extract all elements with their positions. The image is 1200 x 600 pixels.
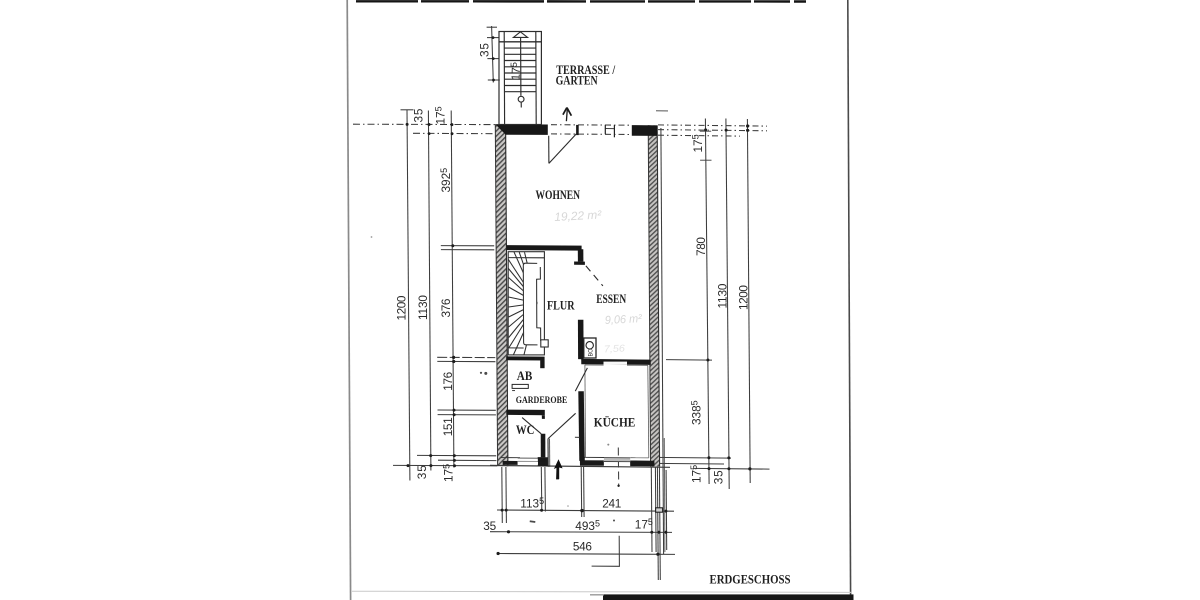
- svg-text:ERDGESCHOSS: ERDGESCHOSS: [710, 573, 791, 587]
- svg-text:KÜCHE: KÜCHE: [594, 415, 636, 430]
- svg-text:1130: 1130: [416, 295, 430, 320]
- svg-text:WC: WC: [516, 423, 535, 437]
- svg-text:BO: BO: [588, 349, 595, 357]
- svg-text:GARTEN: GARTEN: [556, 74, 598, 88]
- svg-text:1130: 1130: [716, 283, 730, 308]
- svg-text:FLUR: FLUR: [547, 298, 575, 312]
- svg-text:7,56: 7,56: [604, 343, 626, 355]
- svg-text:1200: 1200: [395, 295, 409, 320]
- svg-text:35: 35: [483, 519, 496, 533]
- svg-text:546: 546: [573, 540, 592, 554]
- svg-text:35: 35: [415, 465, 429, 479]
- svg-text:19,22 m²: 19,22 m²: [554, 207, 603, 223]
- svg-text:780: 780: [694, 237, 708, 256]
- svg-text:AB: AB: [517, 369, 533, 383]
- svg-text:1200: 1200: [736, 285, 750, 310]
- svg-text:9,06 m²: 9,06 m²: [605, 313, 644, 327]
- svg-text:376: 376: [439, 298, 453, 317]
- svg-text:241: 241: [602, 497, 621, 511]
- svg-text:35: 35: [712, 470, 726, 484]
- svg-text:35: 35: [478, 43, 492, 57]
- svg-text:151: 151: [441, 417, 455, 436]
- svg-text:176: 176: [441, 371, 455, 390]
- svg-text:GARDEROBE: GARDEROBE: [516, 395, 568, 406]
- svg-text:WOHNEN: WOHNEN: [536, 188, 581, 202]
- svg-text:35: 35: [411, 108, 425, 122]
- svg-text:ESSEN: ESSEN: [596, 292, 626, 306]
